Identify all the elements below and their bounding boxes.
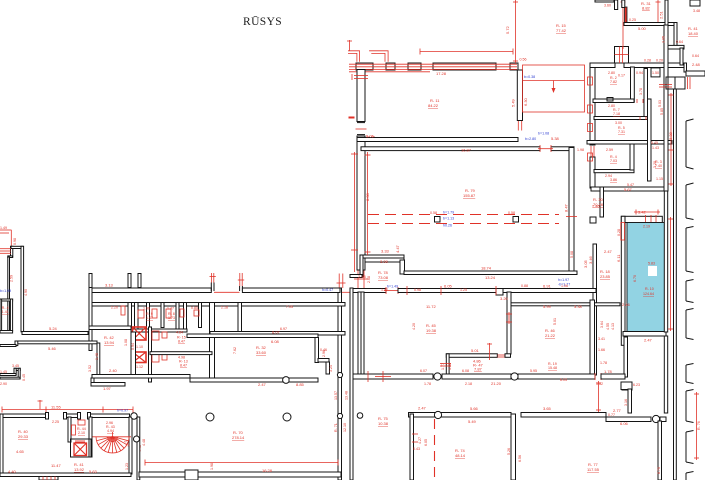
svg-text:R- 71: R- 71 <box>334 423 338 432</box>
svg-text:0.28: 0.28 <box>617 229 621 236</box>
svg-text:7.31: 7.31 <box>618 130 625 134</box>
svg-text:2.80: 2.80 <box>608 71 615 75</box>
svg-text:b=2.80: b=2.80 <box>525 137 536 141</box>
svg-text:0.56: 0.56 <box>520 58 527 62</box>
svg-text:6.05: 6.05 <box>424 439 428 446</box>
svg-text:6.91: 6.91 <box>543 284 552 289</box>
svg-text:1.77: 1.77 <box>441 363 445 370</box>
svg-text:4.13: 4.13 <box>611 323 615 330</box>
svg-text:13.57: 13.57 <box>334 391 338 400</box>
svg-text:19.38: 19.38 <box>426 328 437 333</box>
svg-text:1.49: 1.49 <box>0 226 7 230</box>
svg-text:0.85: 0.85 <box>191 306 198 310</box>
svg-text:6.56: 6.56 <box>518 455 522 462</box>
svg-text:5.63: 5.63 <box>89 469 98 474</box>
svg-text:0.58: 0.58 <box>430 211 437 215</box>
svg-text:1.78: 1.78 <box>424 382 431 386</box>
svg-text:0.64: 0.64 <box>676 40 683 44</box>
svg-text:h=0.47: h=0.47 <box>322 288 333 292</box>
svg-text:0.20: 0.20 <box>656 59 663 63</box>
svg-text:3.13: 3.13 <box>105 283 114 288</box>
svg-text:5.72: 5.72 <box>505 25 510 34</box>
svg-text:2.40: 2.40 <box>109 368 118 373</box>
svg-text:21.22: 21.22 <box>545 333 556 338</box>
svg-text:0.77: 0.77 <box>608 413 615 417</box>
svg-text:b=0.38: b=0.38 <box>524 75 535 79</box>
svg-text:2.19: 2.19 <box>643 225 650 229</box>
svg-text:1.50: 1.50 <box>652 71 659 75</box>
svg-text:0.88: 0.88 <box>521 284 528 288</box>
svg-text:R- 76: R- 76 <box>697 421 701 430</box>
svg-text:2.59: 2.59 <box>606 148 613 152</box>
svg-text:0.17: 0.17 <box>618 74 625 78</box>
svg-text:2.47: 2.47 <box>258 382 267 387</box>
svg-text:18.74: 18.74 <box>481 266 492 271</box>
svg-text:2.51: 2.51 <box>659 10 664 19</box>
svg-text:3.16: 3.16 <box>624 399 628 406</box>
svg-text:h=1.97: h=1.97 <box>558 278 569 282</box>
svg-text:2.96: 2.96 <box>322 350 326 357</box>
svg-text:10.38: 10.38 <box>378 421 389 426</box>
svg-text:13.94: 13.94 <box>104 340 115 345</box>
svg-text:0.58: 0.58 <box>508 211 515 215</box>
svg-text:23.85: 23.85 <box>600 274 611 279</box>
svg-text:16.28: 16.28 <box>262 468 273 473</box>
svg-text:3.24: 3.24 <box>329 365 333 372</box>
svg-text:4.55: 4.55 <box>606 323 610 330</box>
svg-text:0.45: 0.45 <box>651 141 658 145</box>
svg-text:1.23: 1.23 <box>125 463 129 470</box>
svg-text:RŪSYS: RŪSYS <box>243 15 282 28</box>
svg-text:2.18: 2.18 <box>221 306 228 310</box>
svg-text:73.08: 73.08 <box>378 275 389 280</box>
svg-text:5.83: 5.83 <box>648 262 655 266</box>
svg-text:3.45: 3.45 <box>12 364 19 368</box>
svg-text:b=1.13: b=1.13 <box>443 217 454 221</box>
svg-text:6.23: 6.23 <box>633 383 640 387</box>
svg-text:2.47: 2.47 <box>418 406 427 411</box>
svg-text:h=0.97: h=0.97 <box>117 409 128 413</box>
svg-text:1.15: 1.15 <box>656 177 663 181</box>
svg-text:3.33: 3.33 <box>381 249 390 254</box>
svg-text:2.77: 2.77 <box>613 408 622 413</box>
svg-text:5.49: 5.49 <box>468 419 477 424</box>
svg-text:0.94: 0.94 <box>636 71 643 75</box>
svg-text:5.95: 5.95 <box>530 369 537 373</box>
svg-text:0.25: 0.25 <box>629 18 636 22</box>
svg-text:84.22: 84.22 <box>428 103 439 108</box>
svg-text:6.06: 6.06 <box>366 134 375 139</box>
svg-text:h0.26: h0.26 <box>443 224 452 228</box>
svg-text:b=1.49: b=1.49 <box>387 285 398 289</box>
svg-text:5.00: 5.00 <box>638 26 647 31</box>
svg-text:4.20: 4.20 <box>412 323 416 330</box>
svg-text:5.85: 5.85 <box>660 108 664 115</box>
svg-text:1.25: 1.25 <box>460 288 467 292</box>
svg-text:21.20: 21.20 <box>491 381 502 386</box>
svg-text:77.42: 77.42 <box>556 28 567 33</box>
svg-text:124.64: 124.64 <box>643 292 654 296</box>
svg-text:7.40: 7.40 <box>655 164 662 168</box>
svg-text:5.66: 5.66 <box>470 406 479 411</box>
svg-text:5.38: 5.38 <box>551 136 560 141</box>
svg-text:16.87: 16.87 <box>461 148 472 153</box>
svg-text:3.28: 3.28 <box>668 131 673 140</box>
svg-text:4.94: 4.94 <box>107 429 114 433</box>
svg-text:3.38: 3.38 <box>574 304 583 309</box>
svg-text:b=1.08: b=1.08 <box>538 132 549 136</box>
svg-text:1.97: 1.97 <box>103 386 112 391</box>
svg-text:3.60: 3.60 <box>604 4 611 8</box>
svg-text:13.92: 13.92 <box>74 467 85 472</box>
svg-text:3.46: 3.46 <box>588 255 593 264</box>
svg-text:3.08: 3.08 <box>380 259 389 264</box>
svg-text:4.84: 4.84 <box>176 331 183 335</box>
svg-text:1.12: 1.12 <box>136 365 143 369</box>
svg-text:1.68: 1.68 <box>448 363 452 370</box>
svg-text:6.07: 6.07 <box>420 369 427 373</box>
svg-text:6.08: 6.08 <box>462 369 469 373</box>
svg-text:2.46: 2.46 <box>622 302 631 307</box>
svg-text:5.24: 5.24 <box>49 326 58 331</box>
svg-text:1.66: 1.66 <box>598 348 605 352</box>
svg-text:12.10: 12.10 <box>343 423 347 432</box>
svg-text:6.05: 6.05 <box>444 284 453 289</box>
svg-text:2.10: 2.10 <box>78 431 85 435</box>
svg-text:1.08: 1.08 <box>124 339 128 346</box>
svg-text:8.47: 8.47 <box>564 203 569 212</box>
svg-text:2.90: 2.90 <box>0 382 7 386</box>
svg-text:3.20: 3.20 <box>500 296 509 301</box>
svg-text:R- 10: R- 10 <box>645 287 654 291</box>
svg-text:3.41: 3.41 <box>598 337 605 341</box>
svg-text:3.00: 3.00 <box>615 121 622 125</box>
svg-text:5.01: 5.01 <box>471 348 480 353</box>
svg-text:4.90: 4.90 <box>24 289 28 296</box>
svg-text:5.99: 5.99 <box>543 304 552 309</box>
svg-text:13.48: 13.48 <box>345 391 349 400</box>
svg-text:2.46: 2.46 <box>592 204 601 209</box>
svg-text:3.86: 3.86 <box>610 178 617 182</box>
svg-text:3.48: 3.48 <box>693 9 700 13</box>
svg-text:6.97: 6.97 <box>280 327 287 331</box>
svg-text:0.98: 0.98 <box>13 238 17 245</box>
svg-text:2.59: 2.59 <box>10 275 14 282</box>
svg-text:2.18: 2.18 <box>465 382 472 386</box>
svg-text:-b=1.77: -b=1.77 <box>558 283 570 287</box>
svg-text:6.03: 6.03 <box>560 378 567 382</box>
svg-text:6.70: 6.70 <box>633 275 637 282</box>
svg-text:3.78: 3.78 <box>639 88 643 95</box>
svg-text:8.85: 8.85 <box>296 382 305 387</box>
svg-text:4.27: 4.27 <box>418 437 422 444</box>
svg-text:11.47: 11.47 <box>51 463 61 468</box>
svg-text:8.47: 8.47 <box>178 340 185 344</box>
svg-text:0.64: 0.64 <box>692 54 699 58</box>
svg-text:117.55: 117.55 <box>587 467 600 472</box>
svg-text:5.67: 5.67 <box>624 187 633 192</box>
svg-text:6.11: 6.11 <box>616 254 621 262</box>
svg-text:3.52: 3.52 <box>88 365 92 372</box>
svg-text:33.60: 33.60 <box>256 350 267 355</box>
svg-text:1.10: 1.10 <box>136 345 143 349</box>
svg-text:8.70: 8.70 <box>657 467 661 474</box>
svg-text:2.48: 2.48 <box>358 274 367 279</box>
svg-text:155.87: 155.87 <box>463 193 476 198</box>
svg-text:2.48: 2.48 <box>692 62 701 67</box>
svg-text:7.62: 7.62 <box>233 347 237 354</box>
svg-text:5.26: 5.26 <box>507 448 511 455</box>
svg-text:1.47: 1.47 <box>167 307 174 311</box>
svg-text:7.87: 7.87 <box>474 367 483 372</box>
svg-text:6.06: 6.06 <box>620 421 629 426</box>
svg-text:0.98: 0.98 <box>414 288 421 292</box>
svg-text:2.68: 2.68 <box>367 276 371 283</box>
svg-text:0.28: 0.28 <box>644 59 651 63</box>
svg-text:6.30: 6.30 <box>523 97 528 106</box>
svg-text:5.08: 5.08 <box>570 251 574 258</box>
svg-text:2.20: 2.20 <box>111 306 118 310</box>
svg-text:13.24: 13.24 <box>485 275 496 280</box>
svg-text:1.78: 1.78 <box>600 361 607 365</box>
svg-text:4.40: 4.40 <box>8 469 17 474</box>
svg-text:11.72: 11.72 <box>426 304 436 309</box>
svg-text:278.14: 278.14 <box>232 435 245 440</box>
svg-text:2.47: 2.47 <box>644 338 653 343</box>
svg-text:0.45: 0.45 <box>22 374 26 381</box>
svg-text:1.98: 1.98 <box>210 463 214 470</box>
svg-text:h=1.79: h=1.79 <box>443 211 454 215</box>
svg-text:8.82: 8.82 <box>642 6 651 11</box>
svg-text:5.46: 5.46 <box>48 346 57 351</box>
svg-text:7.82: 7.82 <box>610 80 617 84</box>
svg-text:2.47: 2.47 <box>604 249 613 254</box>
svg-text:18.40: 18.40 <box>688 31 699 36</box>
svg-text:4.48: 4.48 <box>142 439 146 446</box>
svg-text:0.43: 0.43 <box>413 447 420 451</box>
svg-text:3.65: 3.65 <box>543 406 552 411</box>
svg-text:1.47: 1.47 <box>381 288 388 292</box>
svg-text:1.43: 1.43 <box>652 146 659 150</box>
svg-text:11.55: 11.55 <box>51 405 61 410</box>
svg-text:1.78: 1.78 <box>604 369 613 374</box>
svg-text:2.25: 2.25 <box>52 420 59 424</box>
svg-text:7.03: 7.03 <box>610 159 617 163</box>
svg-text:1.45: 1.45 <box>0 370 7 374</box>
svg-text:0.94: 0.94 <box>131 343 135 350</box>
svg-text:5.49: 5.49 <box>511 98 516 107</box>
svg-text:4.47: 4.47 <box>395 244 400 253</box>
svg-text:15.48: 15.48 <box>548 366 557 370</box>
svg-text:17.28: 17.28 <box>436 71 447 76</box>
svg-text:4.65: 4.65 <box>16 449 25 454</box>
svg-text:3.05: 3.05 <box>662 36 666 43</box>
svg-text:1.41: 1.41 <box>2 310 9 314</box>
svg-text:5.01: 5.01 <box>553 318 557 325</box>
svg-text:3.49: 3.49 <box>95 353 99 360</box>
svg-text:8.47: 8.47 <box>180 364 187 368</box>
svg-text:3.64: 3.64 <box>600 321 604 328</box>
svg-text:1.98: 1.98 <box>577 148 584 152</box>
svg-text:7.05: 7.05 <box>286 305 293 309</box>
svg-text:b=1.09: b=1.09 <box>0 289 11 293</box>
svg-text:48.14: 48.14 <box>455 453 466 458</box>
svg-text:5.03: 5.03 <box>658 100 662 107</box>
svg-text:7.18: 7.18 <box>613 112 620 116</box>
svg-text:6.08: 6.08 <box>271 339 280 344</box>
svg-text:29.33: 29.33 <box>18 434 29 439</box>
